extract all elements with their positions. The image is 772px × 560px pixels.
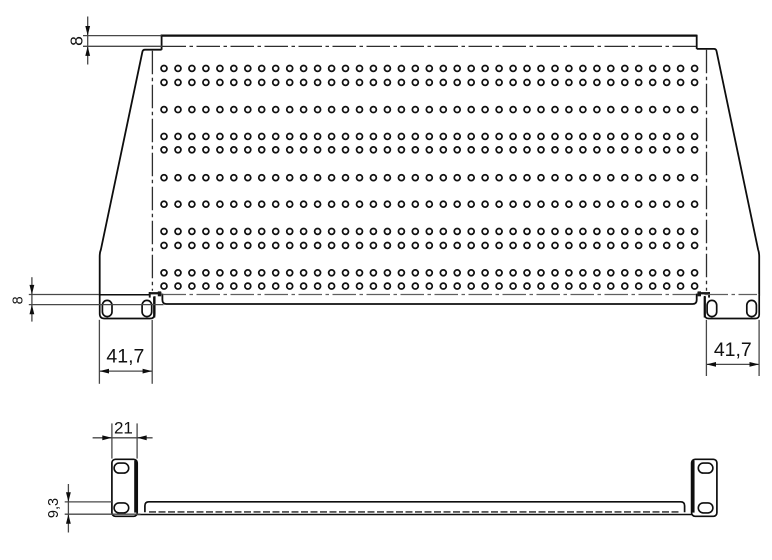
svg-text:8: 8: [11, 296, 27, 304]
svg-text:41,7: 41,7: [714, 339, 752, 361]
svg-text:8: 8: [66, 36, 86, 46]
svg-text:41,7: 41,7: [106, 346, 144, 368]
svg-text:9,3: 9,3: [46, 498, 62, 518]
svg-text:21: 21: [114, 418, 133, 437]
